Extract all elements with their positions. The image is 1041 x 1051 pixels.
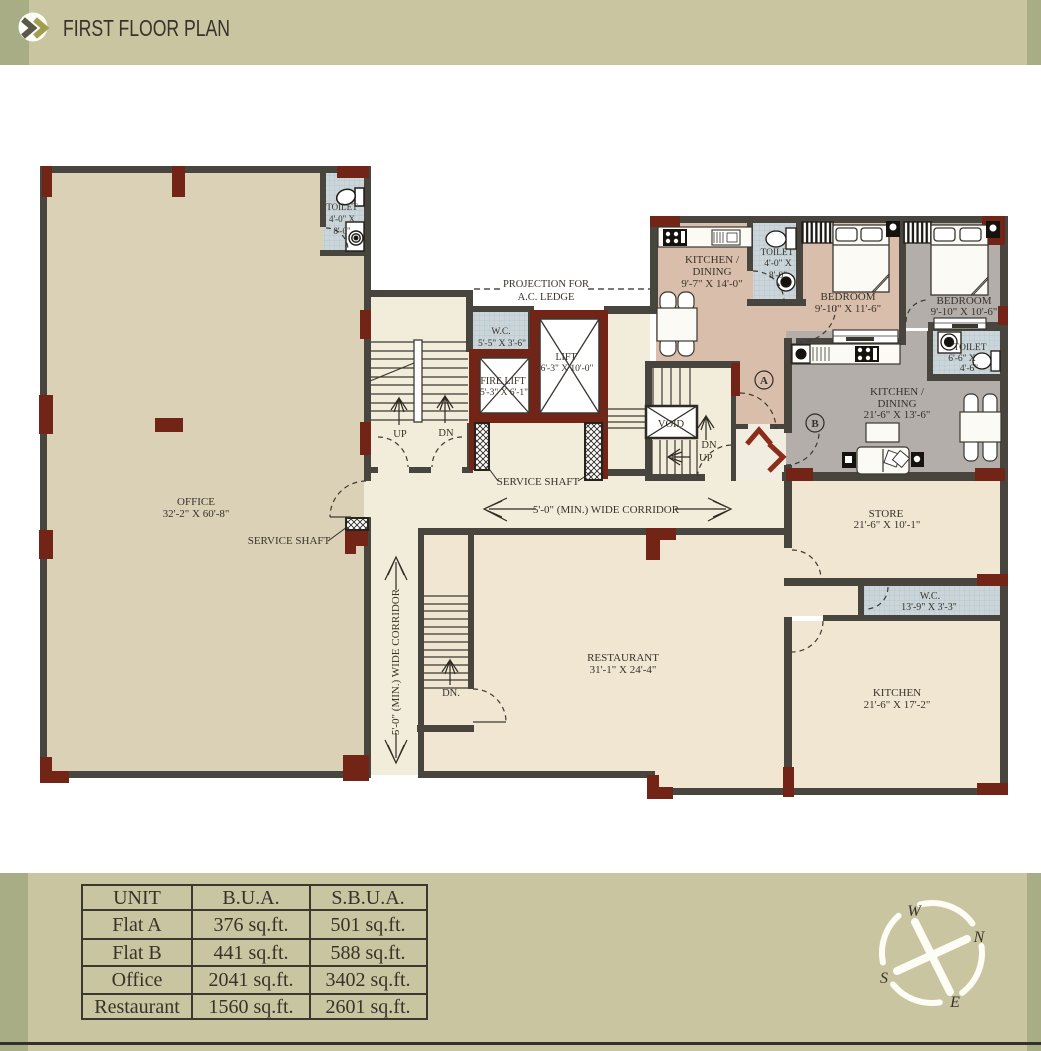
svg-text:A.C. LEDGE: A.C. LEDGE (518, 292, 575, 303)
svg-text:UNIT: UNIT (113, 887, 161, 909)
svg-text:441 sq.ft.: 441 sq.ft. (214, 942, 289, 964)
svg-text:S: S (880, 970, 888, 987)
svg-text:9'-10" X 11'-6": 9'-10" X 11'-6" (815, 303, 881, 315)
svg-text:13'-9" X 3'-3": 13'-9" X 3'-3" (901, 602, 957, 613)
svg-text:6'-3" X 10'-0": 6'-3" X 10'-0" (541, 364, 594, 374)
svg-text:Flat A: Flat A (112, 914, 162, 936)
svg-text:OFFICE: OFFICE (177, 496, 215, 508)
svg-text:5'-3" X 6'-1": 5'-3" X 6'-1" (480, 388, 528, 398)
svg-text:PROJECTION FOR: PROJECTION FOR (503, 279, 589, 290)
svg-text:E: E (949, 994, 960, 1011)
svg-text:KITCHEN: KITCHEN (873, 687, 921, 699)
svg-text:BEDROOM: BEDROOM (820, 291, 875, 303)
svg-text:W: W (907, 903, 922, 920)
svg-text:W.C.: W.C. (491, 327, 510, 337)
svg-text:21'-6" X 17'-2": 21'-6" X 17'-2" (864, 699, 931, 711)
svg-text:21'-6" X 13'-6": 21'-6" X 13'-6" (864, 409, 931, 421)
svg-text:5'-5" X 3'-6": 5'-5" X 3'-6" (478, 339, 526, 349)
svg-text:Restaurant: Restaurant (94, 996, 180, 1018)
svg-text:S.B.U.A.: S.B.U.A. (331, 887, 404, 909)
svg-text:2601 sq.ft.: 2601 sq.ft. (326, 996, 411, 1018)
svg-text:KITCHEN /: KITCHEN / (870, 386, 925, 398)
svg-text:4'-0" X: 4'-0" X (764, 259, 792, 269)
svg-text:6'-6" X: 6'-6" X (948, 354, 976, 364)
svg-text:RESTAURANT: RESTAURANT (587, 652, 659, 664)
svg-text:KITCHEN /: KITCHEN / (685, 254, 740, 266)
svg-text:UP: UP (699, 453, 713, 464)
svg-text:4'-6": 4'-6" (960, 364, 978, 374)
svg-text:1560 sq.ft.: 1560 sq.ft. (209, 996, 294, 1018)
svg-text:A: A (760, 375, 768, 387)
svg-text:5'-0" (MIN.) WIDE CORRIDOR: 5'-0" (MIN.) WIDE CORRIDOR (533, 504, 680, 516)
svg-text:DN: DN (701, 440, 717, 451)
svg-text:VOID: VOID (658, 419, 685, 430)
svg-text:Office: Office (112, 969, 163, 991)
svg-text:B: B (811, 418, 819, 430)
svg-text:TOILET: TOILET (326, 202, 358, 212)
svg-text:2041 sq.ft.: 2041 sq.ft. (209, 969, 294, 991)
svg-text:501 sq.ft.: 501 sq.ft. (331, 914, 406, 936)
svg-text:SERVICE SHAFT: SERVICE SHAFT (497, 476, 580, 488)
svg-text:W.C.: W.C. (920, 591, 940, 602)
svg-text:8'-0": 8'-0" (769, 271, 787, 281)
svg-text:32'-2" X 60'-8": 32'-2" X 60'-8" (163, 508, 230, 520)
svg-text:UP: UP (393, 429, 407, 440)
svg-text:FIRST FLOOR PLAN: FIRST FLOOR PLAN (63, 15, 230, 41)
svg-text:9'-7" X 14'-0": 9'-7" X 14'-0" (681, 278, 742, 290)
svg-text:9'-10" X 10'-6": 9'-10" X 10'-6" (931, 306, 998, 318)
svg-text:21'-6" X 10'-1": 21'-6" X 10'-1" (854, 519, 921, 531)
svg-text:B.U.A.: B.U.A. (222, 887, 279, 909)
svg-text:5'-0" (MIN.) WIDE CORRIDOR: 5'-0" (MIN.) WIDE CORRIDOR (390, 588, 402, 735)
svg-text:376 sq.ft.: 376 sq.ft. (214, 914, 289, 936)
svg-text:N: N (973, 929, 986, 946)
svg-text:FIRE LIFT: FIRE LIFT (480, 376, 525, 387)
svg-text:DN: DN (438, 428, 454, 439)
svg-text:31'-1" X 24'-4": 31'-1" X 24'-4" (590, 664, 657, 676)
svg-text:DN.: DN. (442, 688, 460, 699)
svg-text:DINING: DINING (692, 266, 731, 278)
svg-text:4'-0" X: 4'-0" X (329, 214, 356, 224)
svg-text:LIFT: LIFT (555, 352, 576, 363)
svg-text:TOILET: TOILET (953, 343, 986, 353)
svg-text:3402 sq.ft.: 3402 sq.ft. (326, 969, 411, 991)
svg-text:8'-0": 8'-0" (333, 226, 351, 236)
svg-text:588 sq.ft.: 588 sq.ft. (331, 942, 406, 964)
svg-text:SERVICE SHAFT: SERVICE SHAFT (248, 535, 331, 547)
svg-text:Flat B: Flat B (112, 942, 161, 964)
svg-text:TOILET: TOILET (760, 248, 793, 258)
